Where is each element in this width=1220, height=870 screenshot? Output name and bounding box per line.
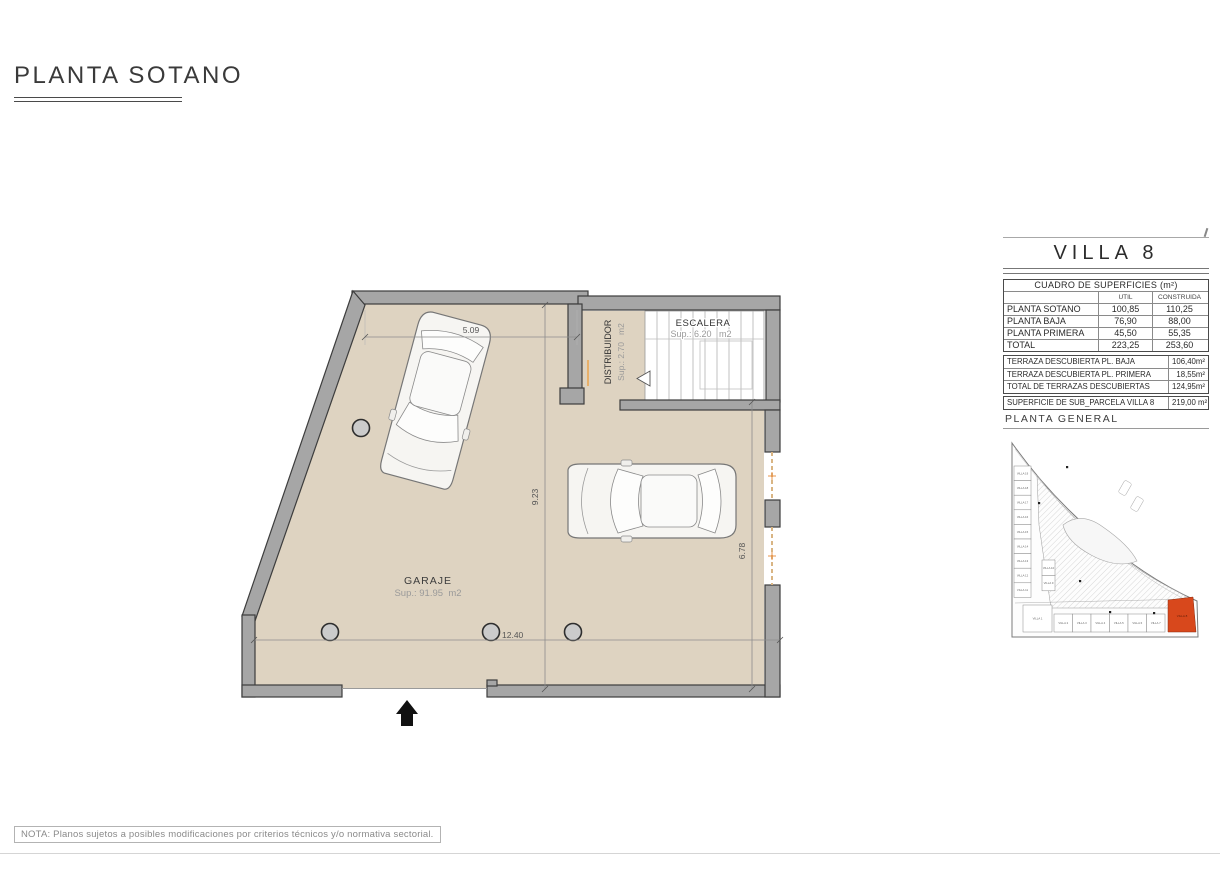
table-row-total: TOTAL 223,25 253,60: [1004, 339, 1208, 351]
row-label: TERRAZA DESCUBIERTA PL. BAJA: [1004, 356, 1168, 368]
table-row: PLANTA SOTANO 100,85 110,25: [1004, 303, 1208, 315]
entrance-arrow-icon: [396, 700, 418, 726]
garage-label: GARAJE: [404, 575, 452, 587]
column: [483, 624, 500, 641]
dim-height: 9.23: [530, 488, 540, 505]
row-value: 18,55m²: [1168, 369, 1208, 381]
car-right: [568, 460, 736, 542]
wall-divider: [568, 304, 582, 390]
minimap-unit-label: VILLA 7: [1151, 621, 1161, 625]
column: [565, 624, 582, 641]
column: [322, 624, 339, 641]
col-header-util: UTIL: [1098, 292, 1152, 303]
site-plan-title: PLANTA GENERAL: [1005, 413, 1119, 425]
row-util: 223,25: [1098, 340, 1152, 351]
table-row: TERRAZA DESCUBIERTA PL. PRIMERA 18,55m²: [1004, 368, 1208, 381]
drawing-sheet: PLANTA SOTANO: [0, 0, 1220, 870]
minimap-highlight-label: VILLA 8: [1177, 614, 1188, 618]
minimap-left-units: VILLA 19VILLA 18VILLA 17VILLA 16VILLA 15…: [1014, 466, 1031, 597]
minimap-unit-label: VILLA 17: [1017, 501, 1029, 505]
row-label: PLANTA PRIMERA: [1004, 328, 1098, 339]
row-util: 76,90: [1098, 316, 1152, 327]
surfaces-table-title: CUADRO DE SUPERFICIES (m²): [1004, 280, 1208, 291]
minimap-unit-label: VILLA 5: [1114, 621, 1124, 625]
floor-plan: 5.09 9.23 12.40 6.78 GARAJE Sup.: 91.95 …: [0, 0, 1220, 870]
stairs-area-label: Sup.: 6.20 m2: [670, 329, 731, 339]
row-util: 100,85: [1098, 304, 1152, 315]
minimap-unit-label: VILLA 13: [1017, 559, 1029, 563]
row-construida: 253,60: [1152, 340, 1206, 351]
col-header-construida: CONSTRUIDA: [1152, 292, 1206, 303]
row-value: 106,40m²: [1168, 356, 1208, 368]
row-label: PLANTA SOTANO: [1004, 304, 1098, 315]
panel-top-rule: [1003, 237, 1209, 238]
dim-width: 12.40: [502, 630, 524, 640]
footer-note: NOTA: Planos sujetos a posibles modifica…: [14, 826, 441, 843]
minimap-unit-label: VILLA 11: [1017, 588, 1029, 592]
row-util: 45,50: [1098, 328, 1152, 339]
surfaces-table: CUADRO DE SUPERFICIES (m²) UTIL CONSTRUI…: [1003, 279, 1209, 352]
row-label: SUPERFICIE DE SUB_PARCELA VILLA 8: [1004, 397, 1168, 409]
wall-pillar-2: [765, 500, 780, 527]
table-row: PLANTA PRIMERA 45,50 55,35: [1004, 327, 1208, 339]
table-row: TERRAZA DESCUBIERTA PL. BAJA 106,40m²: [1004, 356, 1208, 368]
row-label: TOTAL DE TERRAZAS DESCUBIERTAS: [1004, 381, 1168, 393]
wall-divider-foot: [560, 388, 584, 404]
row-label: TOTAL: [1004, 340, 1098, 351]
wall-door-jamb: [487, 680, 497, 686]
garage-area: Sup.: 91.95 m2: [394, 588, 461, 599]
wall-bottom-right: [487, 685, 780, 697]
minimap-unit-label: VILLA 6: [1132, 621, 1142, 625]
dim-right: 6.78: [737, 542, 747, 559]
hall-area-label: Sup.: 2.70 m2: [616, 323, 626, 381]
minimap-unit-label: VILLA 2: [1058, 621, 1068, 625]
villa-title: VILLA 8: [1003, 242, 1209, 265]
minimap-unit-label: VILLA 10: [1043, 566, 1055, 570]
wall-stairs-top: [578, 296, 780, 310]
minimap-unit-label: VILLA 18: [1017, 486, 1029, 490]
dim-top: 5.09: [463, 325, 480, 335]
minimap-unit-label: VILLA 3: [1077, 621, 1087, 625]
wall-bottom-left: [242, 685, 342, 697]
villa-title-underline: [1003, 268, 1209, 274]
wall-pillar-3: [765, 585, 780, 697]
column: [353, 420, 370, 437]
wall-top: [352, 291, 588, 304]
minimap-unit-label: VILLA 9: [1044, 581, 1054, 585]
terraces-table: TERRAZA DESCUBIERTA PL. BAJA 106,40m² TE…: [1003, 355, 1209, 394]
site-minimap: VILLA 19VILLA 18VILLA 17VILLA 16VILLA 15…: [1012, 443, 1198, 637]
hall-label: DISTRIBUIDOR: [603, 319, 613, 384]
row-construida: 88,00: [1152, 316, 1206, 327]
minimap-middle-units: VILLA 10VILLA 9: [1042, 560, 1055, 591]
minimap-unit-label: VILLA 19: [1017, 471, 1029, 475]
row-label: TERRAZA DESCUBIERTA PL. PRIMERA: [1004, 369, 1168, 381]
minimap-unit-label: VILLA 4: [1095, 621, 1105, 625]
row-label: PLANTA BAJA: [1004, 316, 1098, 327]
row-value: 124,95m²: [1168, 381, 1208, 393]
parcel-table: SUPERFICIE DE SUB_PARCELA VILLA 8 219,00…: [1003, 396, 1209, 410]
site-plan-underline: [1003, 428, 1209, 429]
minimap-unit-label: VILLA 12: [1017, 574, 1029, 578]
footer-rule: [0, 853, 1220, 854]
row-value: 219,00 m²: [1168, 397, 1208, 409]
table-row: SUPERFICIE DE SUB_PARCELA VILLA 8 219,00…: [1004, 397, 1208, 409]
minimap-unit-label: VILLA 16: [1017, 515, 1029, 519]
wall-pillar-1: [765, 410, 780, 452]
table-row: TOTAL DE TERRAZAS DESCUBIERTAS 124,95m²: [1004, 380, 1208, 393]
stairs-label: ESCALERA: [676, 318, 731, 329]
row-construida: 55,35: [1152, 328, 1206, 339]
wall-stairs-right: [766, 310, 780, 402]
table-row: PLANTA BAJA 76,90 88,00: [1004, 315, 1208, 327]
minimap-unit-label: VILLA 15: [1017, 530, 1029, 534]
row-construida: 110,25: [1152, 304, 1206, 315]
minimap-unit-label: VILLA 1: [1033, 617, 1043, 621]
minimap-unit-label: VILLA 14: [1017, 544, 1029, 548]
wall-stairs-bottom: [620, 400, 780, 410]
